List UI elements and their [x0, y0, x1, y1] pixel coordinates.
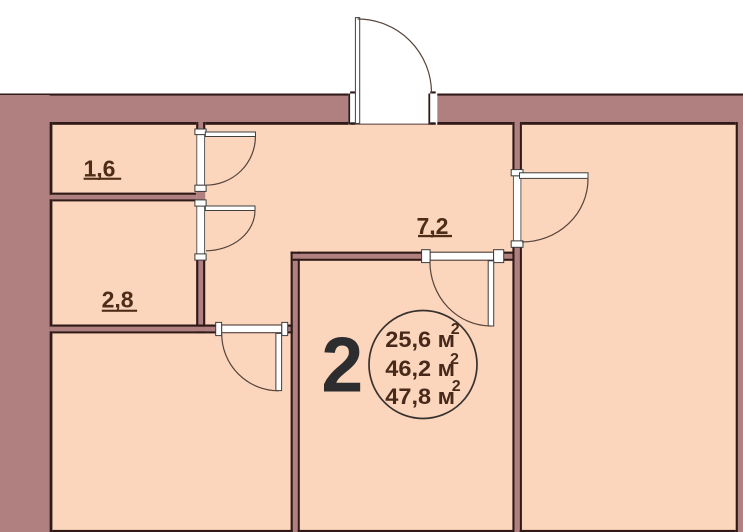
svg-text:2: 2: [321, 322, 363, 408]
svg-text:2,8: 2,8: [102, 287, 134, 313]
svg-text:25,6 м: 25,6 м: [385, 327, 455, 352]
svg-text:46,2 м: 46,2 м: [385, 356, 455, 381]
svg-text:47,8 м: 47,8 м: [385, 384, 455, 409]
svg-text:2: 2: [452, 378, 461, 395]
svg-text:2: 2: [451, 321, 460, 338]
svg-text:1,6: 1,6: [84, 155, 116, 181]
svg-text:2: 2: [450, 351, 459, 368]
